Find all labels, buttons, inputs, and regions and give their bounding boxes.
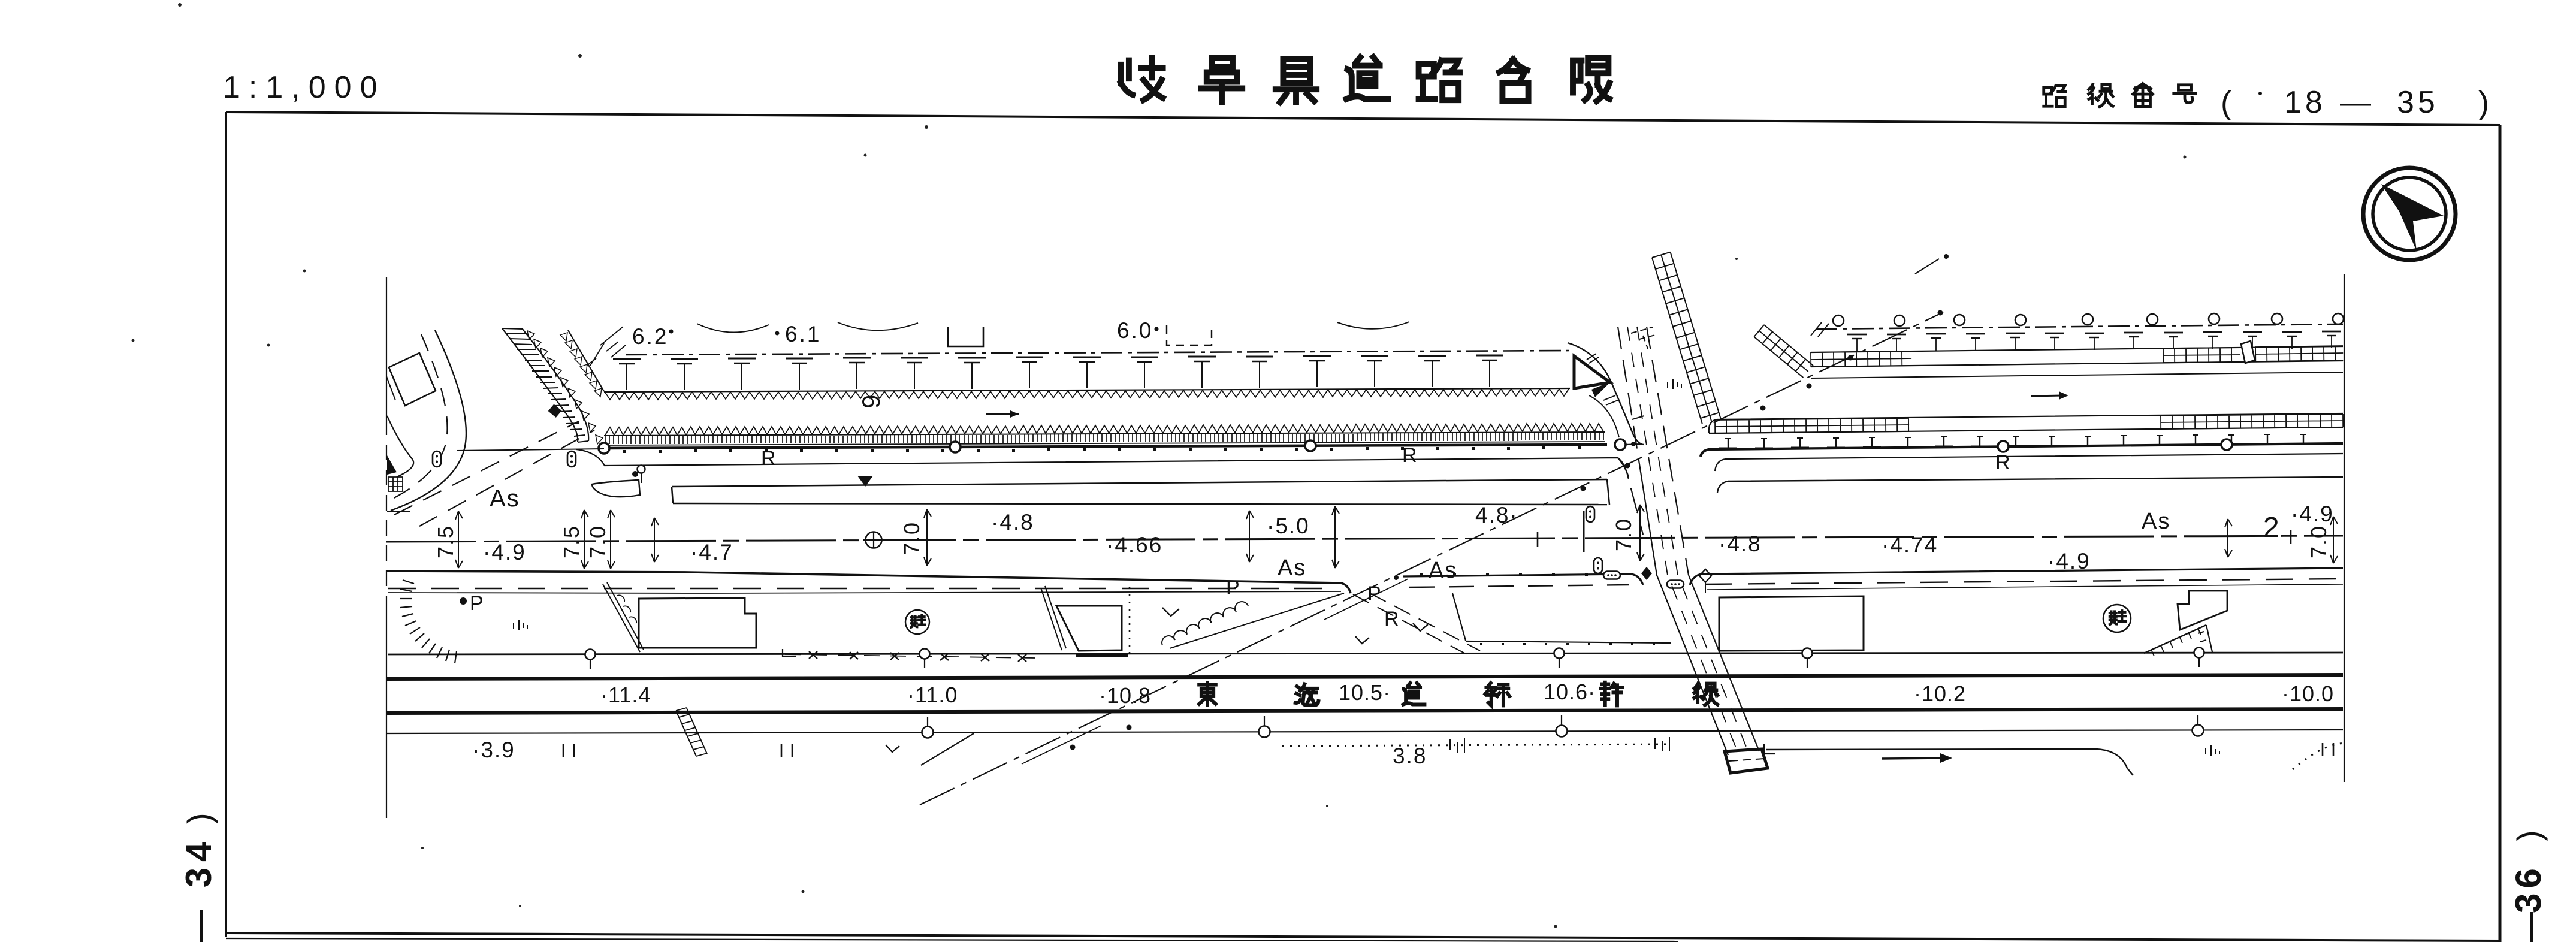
svg-text:1:1,000: 1:1,000 [223,70,386,105]
svg-text:·3.9: ·3.9 [472,738,515,762]
svg-text:·10.2: ·10.2 [1914,681,1966,706]
svg-text:): ) [180,813,218,824]
svg-text:As: As [1278,555,1306,581]
svg-text:·5.0: ·5.0 [1267,514,1310,538]
svg-text:P: P [470,592,484,615]
svg-text:As: As [2142,509,2170,534]
svg-text:·10.0: ·10.0 [2282,681,2334,706]
svg-text:P: P [1226,576,1240,599]
svg-text:R: R [1995,451,2010,474]
svg-text:10.5·: 10.5· [1339,680,1391,705]
svg-text:—: — [2510,912,2548,942]
svg-text:): ) [2510,830,2548,841]
svg-text:9: 9 [857,395,885,409]
svg-text:7.0: 7.0 [585,525,610,558]
svg-text:·11.0: ·11.0 [907,683,958,707]
svg-text:R: R [1384,608,1399,630]
svg-text:(: ( [2221,85,2231,121]
svg-text:7.0: 7.0 [1611,518,1636,551]
svg-text:7.5: 7.5 [433,525,458,558]
svg-text:6.2: 6.2 [632,324,668,349]
svg-text:36: 36 [2508,864,2548,913]
svg-text:·4.74: ·4.74 [1882,533,1938,557]
svg-text:2: 2 [2263,512,2279,544]
svg-text:35: 35 [2397,85,2439,120]
svg-text:18: 18 [2284,85,2326,120]
svg-text:·4.9: ·4.9 [483,540,526,564]
svg-text:6.1: 6.1 [785,322,821,346]
svg-text:4.8·: 4.8· [1475,503,1518,527]
svg-text:·4.66: ·4.66 [1106,533,1162,557]
svg-text:R: R [1402,444,1417,467]
svg-text:— 34: — 34 [179,836,219,942]
svg-text:R: R [761,447,776,470]
svg-text:7.0: 7.0 [2306,525,2331,558]
svg-text:·4.8: ·4.8 [991,510,1034,535]
svg-text:As: As [490,485,520,512]
svg-text:3.8: 3.8 [1393,744,1427,768]
svg-text:·10.8: ·10.8 [1099,683,1151,708]
svg-text:7.5: 7.5 [559,525,584,558]
svg-text:7.0: 7.0 [899,521,924,555]
svg-text:): ) [2478,85,2489,121]
svg-text:10.6·: 10.6· [1544,680,1596,704]
svg-text:6.0: 6.0 [1117,318,1153,343]
svg-text:·11.4: ·11.4 [600,683,651,707]
svg-text:—: — [2340,85,2371,120]
svg-text:·4.7: ·4.7 [690,540,733,564]
svg-text:·4.9: ·4.9 [2291,502,2334,526]
svg-text:As: As [1429,558,1457,583]
svg-text:·4.8: ·4.8 [1719,532,1762,556]
